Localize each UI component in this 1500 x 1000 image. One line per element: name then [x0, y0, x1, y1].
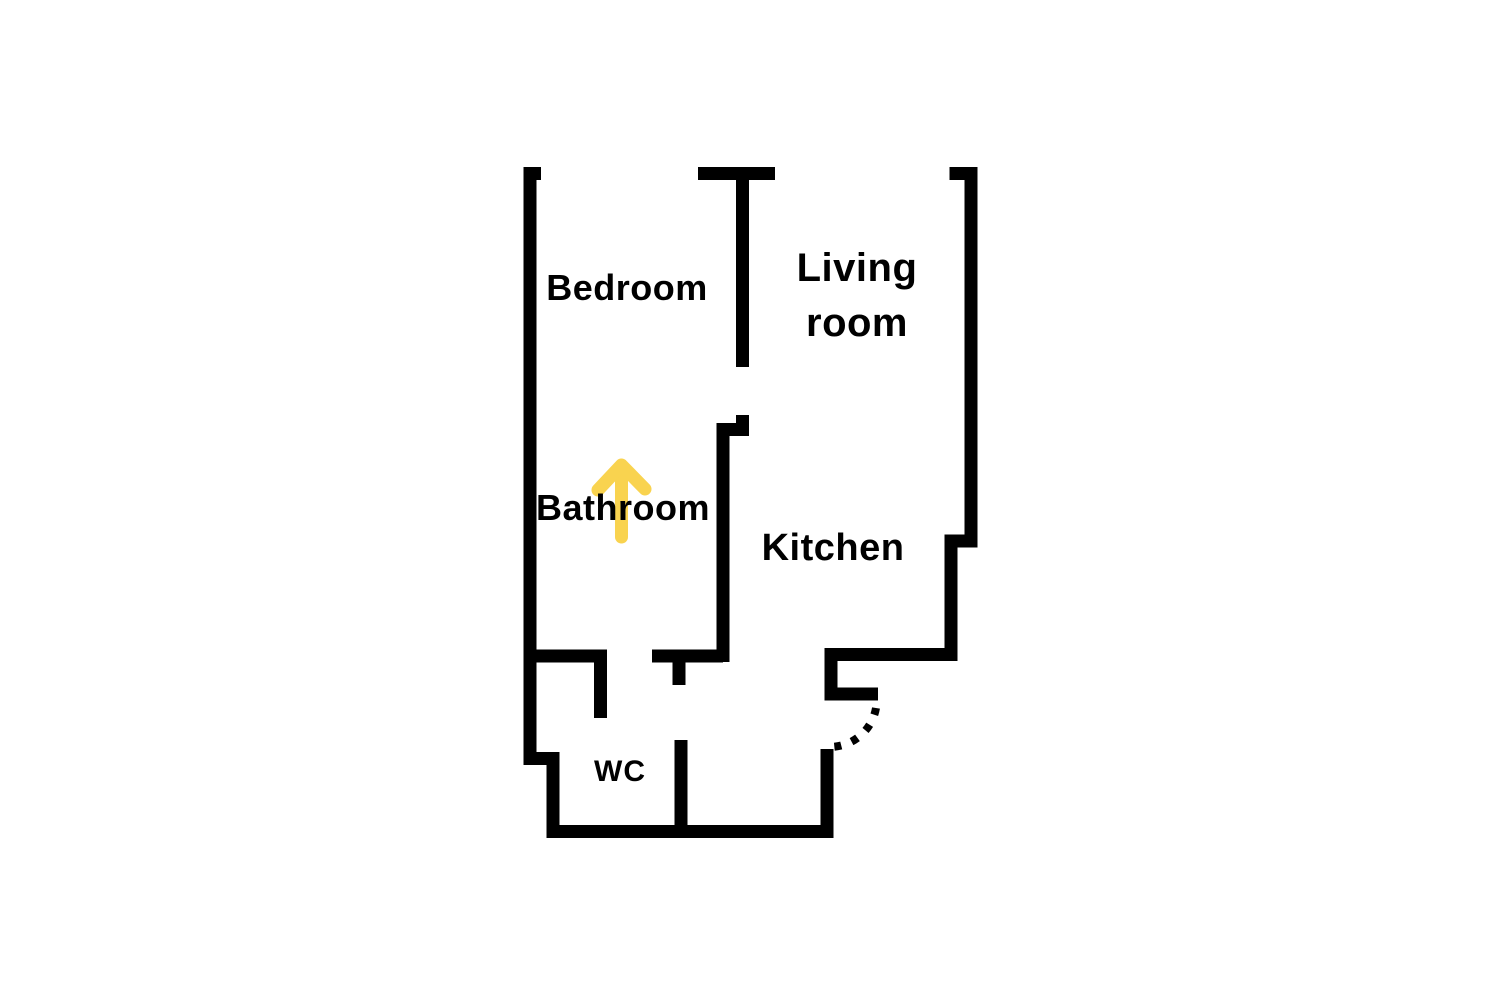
door-swing-arc [830, 708, 876, 747]
room-label-wc: WC [594, 757, 646, 787]
room-label-living-line2: room [797, 296, 918, 351]
wall-hall-left-stub [530, 656, 601, 718]
room-label-kitchen: Kitchen [762, 529, 905, 567]
wall-bathroom-kitchen-divider [723, 415, 743, 662]
floor-plan-drawing [0, 0, 1500, 1000]
room-label-living-room: Living room [797, 241, 918, 351]
room-label-living-line1: Living [797, 241, 918, 296]
room-label-bedroom: Bedroom [546, 270, 708, 306]
floor-plan-canvas: Bedroom Living room Bathroom Kitchen WC [0, 0, 1500, 1000]
room-label-bathroom: Bathroom [536, 490, 710, 526]
